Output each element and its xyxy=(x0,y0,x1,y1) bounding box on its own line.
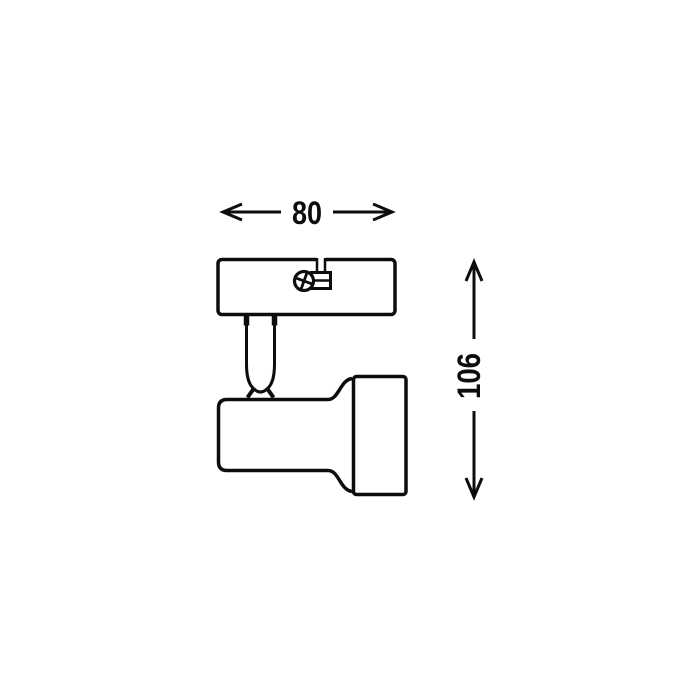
swivel-stem xyxy=(247,316,275,392)
lamp-head-body xyxy=(219,379,353,492)
fixing-screw-icon xyxy=(295,272,314,291)
joint-foot-right xyxy=(267,388,274,398)
joint-foot-left xyxy=(248,388,255,398)
lamp-head-ring xyxy=(354,377,407,495)
width-dimension-label: 80 xyxy=(292,195,322,231)
height-dimension-label: 106 xyxy=(451,353,487,399)
spotlight-dimension-diagram: 80 106 xyxy=(0,0,700,700)
technical-drawing-svg: 80 106 xyxy=(0,0,700,700)
drawing-root xyxy=(218,204,482,497)
